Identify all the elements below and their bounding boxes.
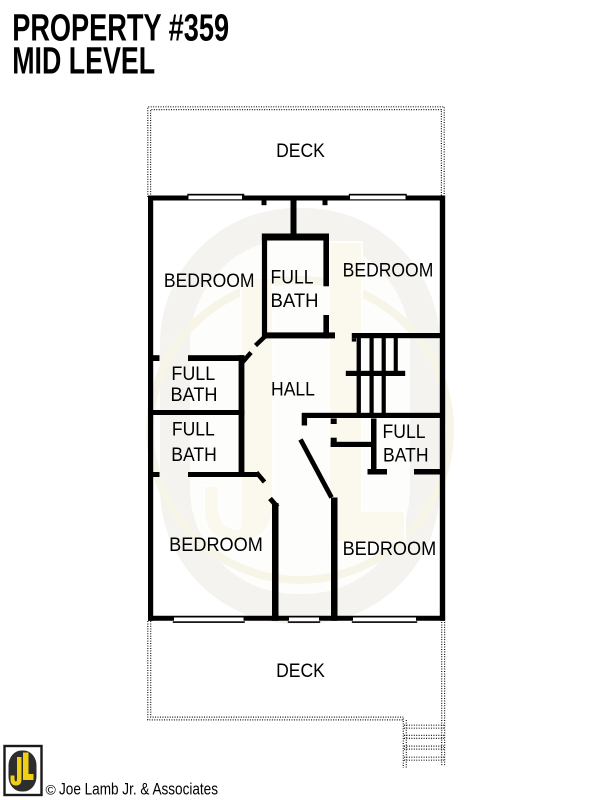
svg-text:HALL: HALL — [271, 378, 315, 400]
svg-text:FULL: FULL — [171, 362, 215, 384]
svg-text:BEDROOM: BEDROOM — [164, 269, 255, 291]
svg-text:BEDROOM: BEDROOM — [343, 258, 434, 280]
svg-text:Joe Lamb Jr. & Associates: Joe Lamb Jr. & Associates — [59, 781, 218, 799]
svg-text:MID LEVEL: MID LEVEL — [12, 39, 155, 82]
svg-text:FULL: FULL — [383, 420, 426, 442]
svg-text:BATH: BATH — [171, 383, 218, 405]
svg-text:FULL: FULL — [172, 418, 215, 440]
svg-text:FULL: FULL — [271, 266, 314, 288]
svg-text:BATH: BATH — [171, 443, 216, 465]
svg-text:BATH: BATH — [383, 444, 428, 466]
svg-text:BATH: BATH — [271, 291, 319, 313]
svg-text:©: © — [46, 782, 57, 798]
svg-text:DECK: DECK — [276, 659, 325, 681]
svg-text:DECK: DECK — [276, 139, 325, 161]
svg-text:BEDROOM: BEDROOM — [343, 537, 437, 559]
svg-text:BEDROOM: BEDROOM — [169, 533, 263, 555]
